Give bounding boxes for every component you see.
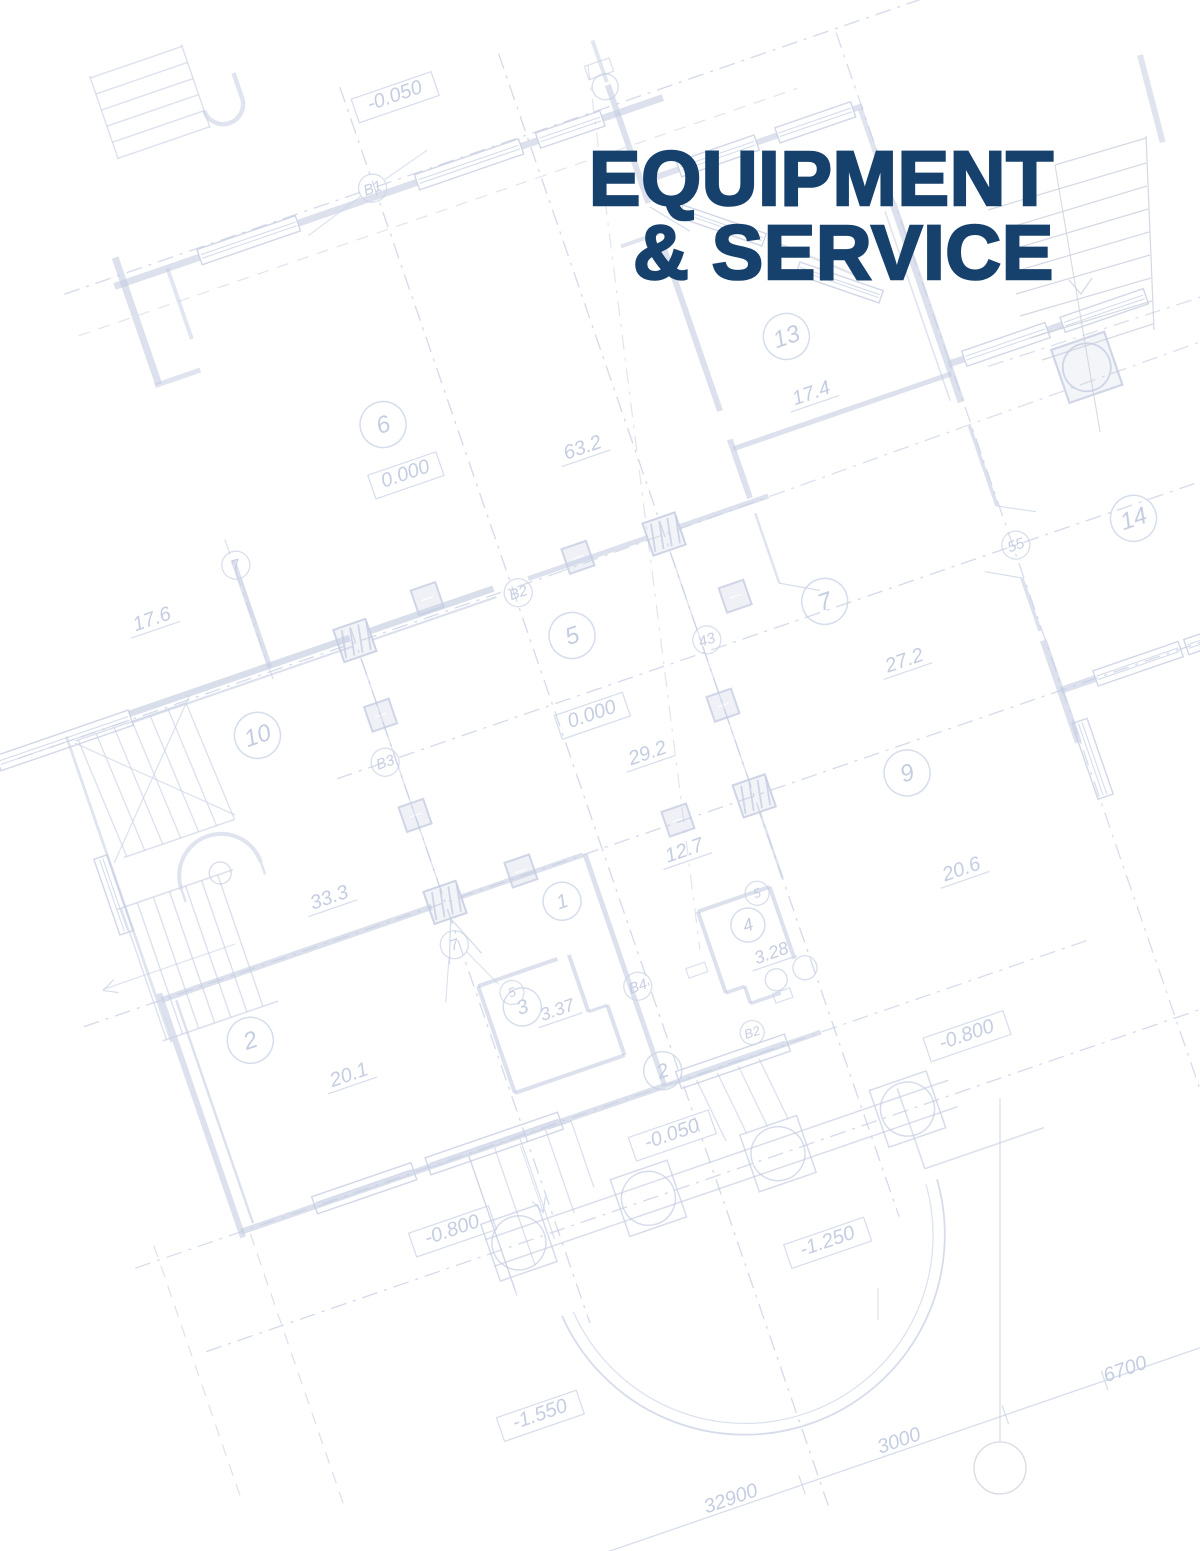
svg-text:B2: B2 [507, 582, 531, 604]
svg-text:-1.250: -1.250 [797, 1222, 858, 1261]
svg-text:5: 5 [562, 621, 584, 651]
svg-text:-1.550: -1.550 [509, 1395, 570, 1434]
svg-text:3.37: 3.37 [537, 994, 578, 1025]
svg-text:1: 1 [553, 890, 571, 914]
svg-text:9: 9 [897, 759, 918, 789]
svg-text:B2: B2 [742, 1022, 763, 1042]
svg-text:2: 2 [653, 1059, 672, 1084]
svg-text:3.28: 3.28 [751, 938, 791, 968]
svg-text:55: 55 [1005, 535, 1027, 557]
svg-text:14: 14 [1117, 502, 1151, 536]
svg-text:0.000: 0.000 [565, 696, 619, 733]
svg-text:0.000: 0.000 [378, 455, 432, 492]
svg-text:43: 43 [696, 629, 718, 651]
svg-text:-0.800: -0.800 [936, 1015, 997, 1054]
svg-text:-0.050: -0.050 [641, 1115, 702, 1154]
svg-text:10: 10 [241, 719, 276, 753]
svg-text:32900: 32900 [701, 1479, 761, 1518]
svg-text:13: 13 [770, 320, 805, 354]
svg-text:7: 7 [814, 587, 837, 617]
svg-text:-0.800: -0.800 [422, 1210, 483, 1249]
svg-text:3000: 3000 [874, 1423, 923, 1458]
svg-text:7: 7 [229, 556, 243, 575]
svg-text:5: 5 [751, 885, 763, 902]
svg-text:5: 5 [506, 984, 518, 1001]
svg-text:4: 4 [740, 914, 756, 936]
svg-text:2: 2 [239, 1026, 261, 1056]
svg-text:6: 6 [373, 410, 395, 440]
svg-text:-0.050: -0.050 [364, 76, 425, 115]
svg-text:6700: 6700 [1101, 1352, 1150, 1387]
